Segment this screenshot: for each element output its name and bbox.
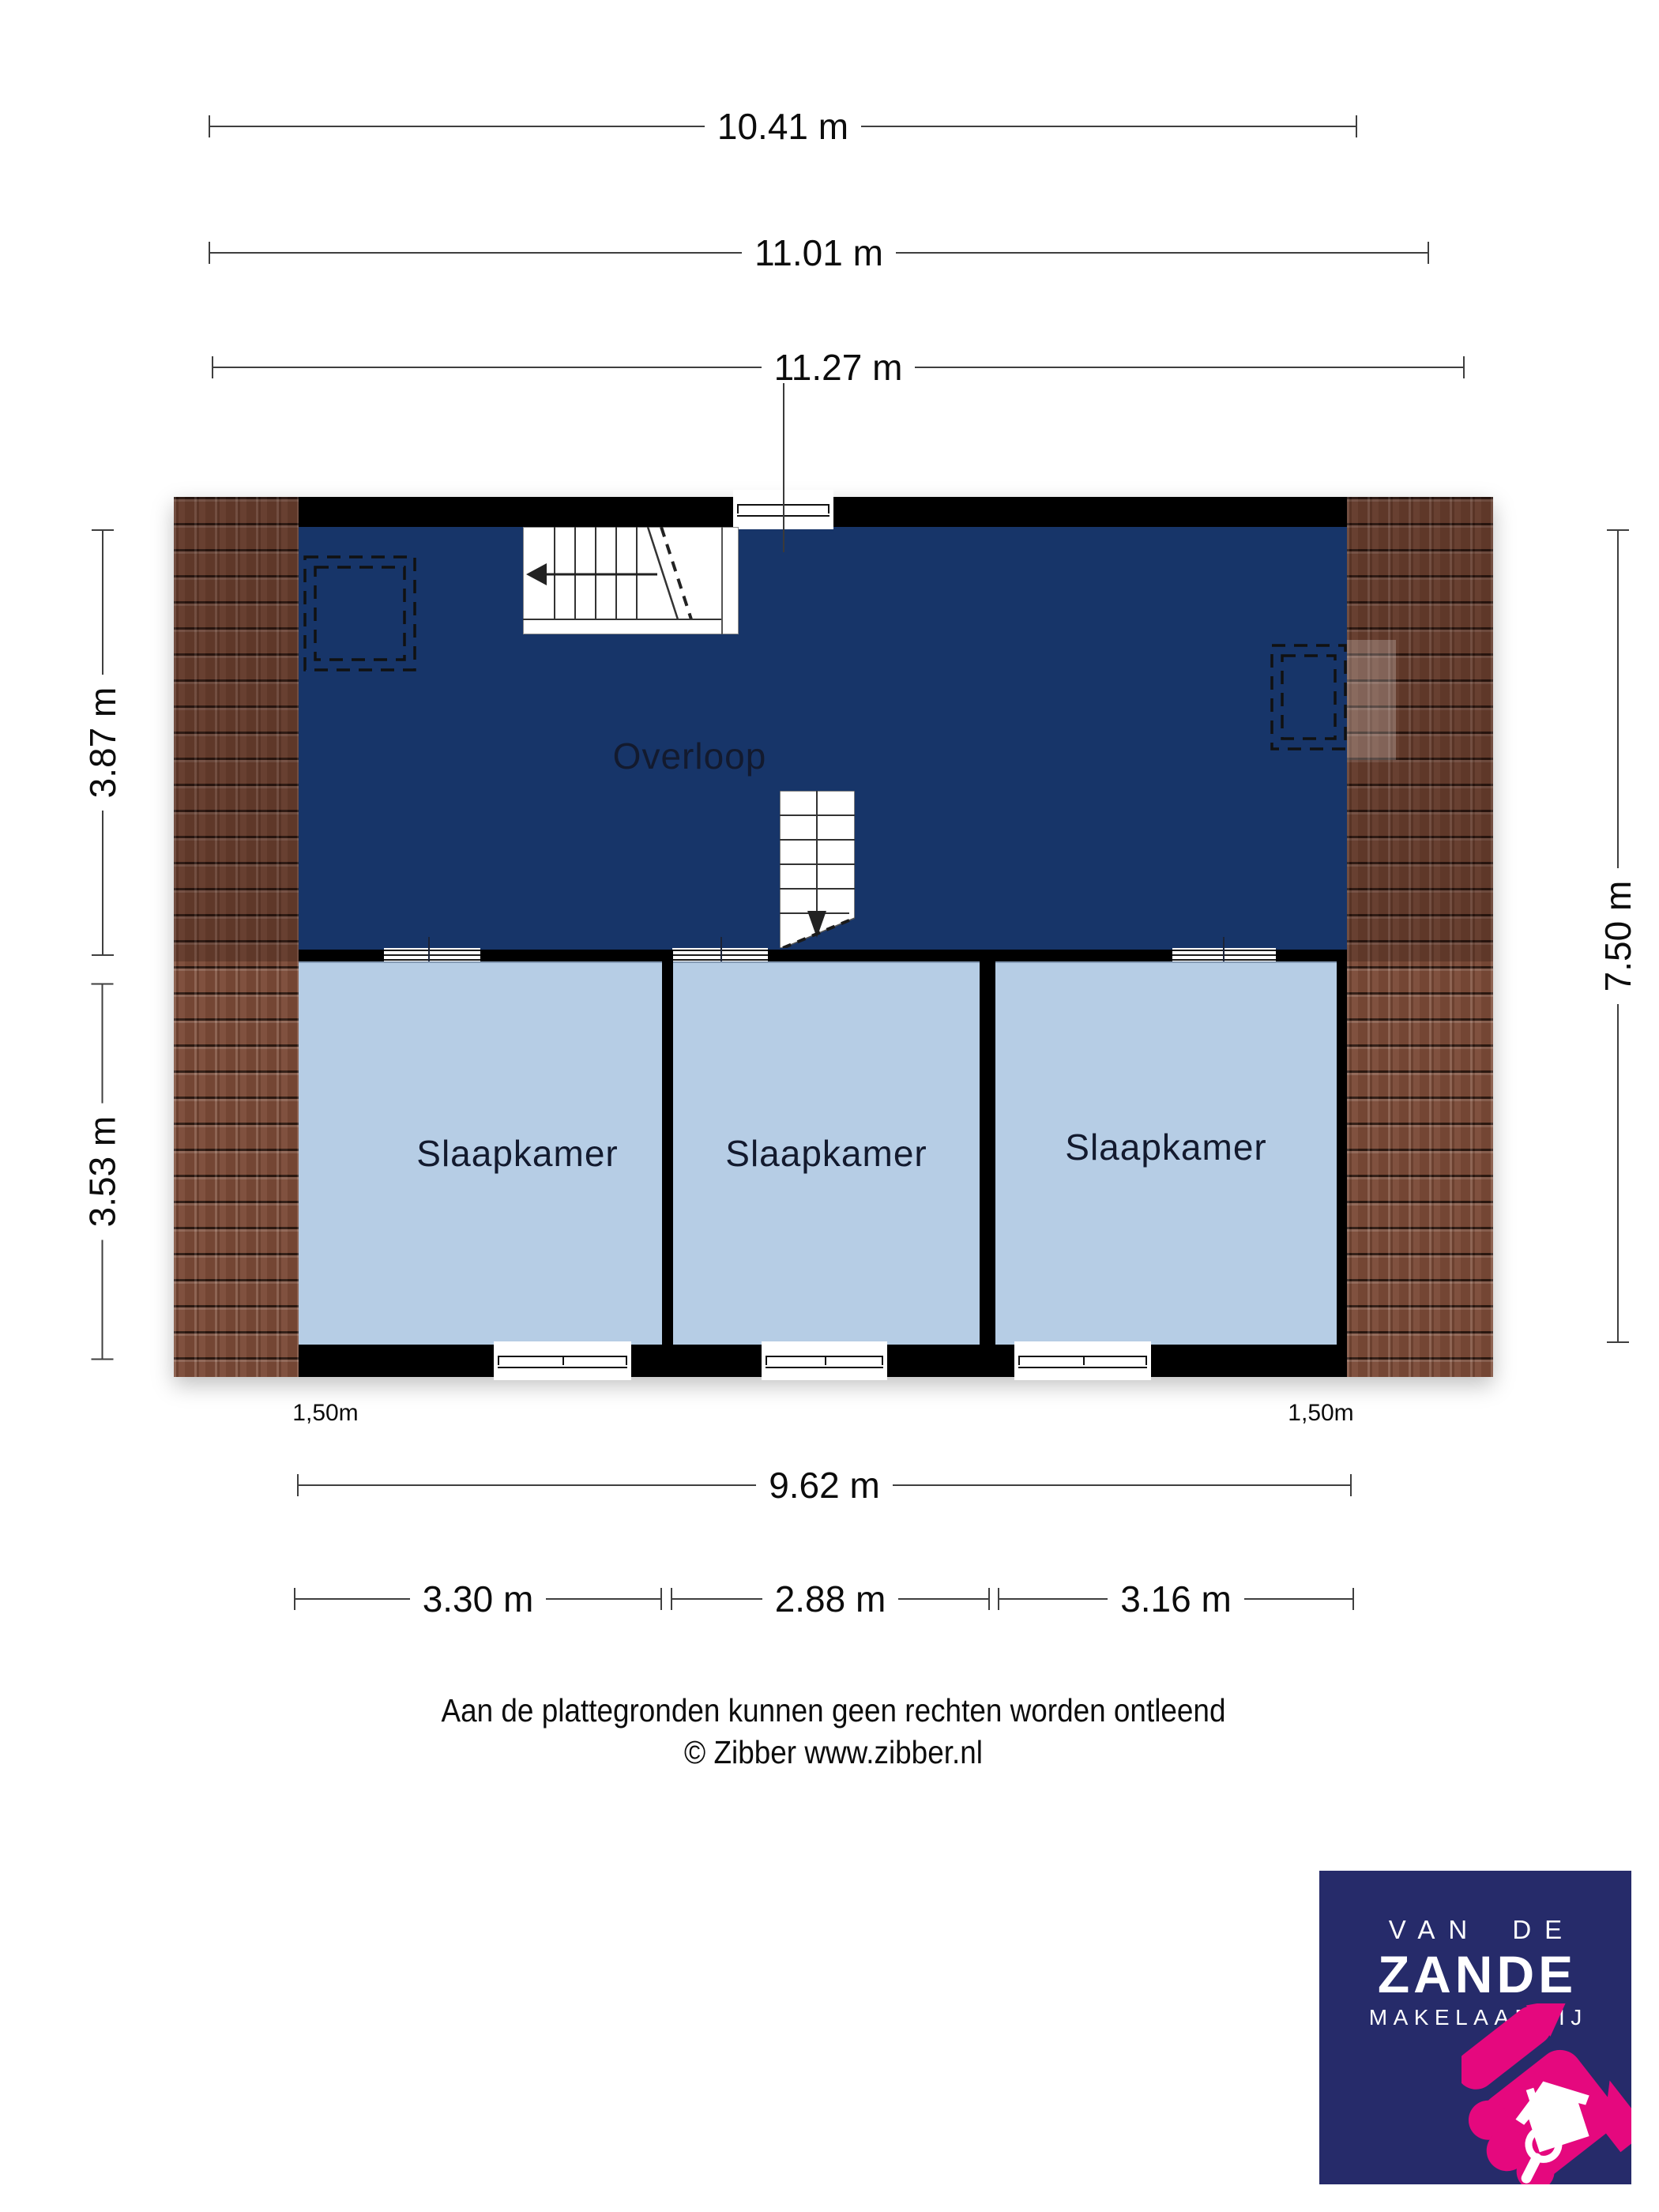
- roof-shade-left: [174, 497, 299, 961]
- logo-line-top: VAN DE: [1319, 1915, 1631, 1945]
- dimension-width-inner: 10.41 m: [209, 109, 1357, 144]
- dimension-tick: [212, 356, 213, 378]
- window-bedroom-1: [494, 1341, 631, 1380]
- window-frame: [1018, 1356, 1020, 1365]
- window-frame: [498, 1356, 499, 1365]
- dimension-line: [915, 367, 1465, 368]
- dimension-label: 11.01 m: [742, 231, 896, 274]
- dimension-room-3: 3.16 m: [998, 1582, 1354, 1616]
- floorplan: Overloop Slaapkamer Slaapkamer: [174, 497, 1493, 1377]
- footer-disclaimer: Aan de plattegronden kunnen geen rechten…: [300, 1692, 1367, 1771]
- dimension-tick: [209, 242, 210, 264]
- dimension-room-2: 2.88 m: [671, 1582, 990, 1616]
- disclaimer-text: Aan de plattegronden kunnen geen rechten…: [300, 1692, 1367, 1729]
- dimension-line: [294, 1598, 410, 1600]
- window-bedroom-3: [1014, 1341, 1151, 1380]
- dimension-tick: [988, 1588, 990, 1610]
- floorplan-page: 10.41 m 11.01 m 11.27 m 3.87 m 3.53 m 7.…: [0, 0, 1659, 2212]
- dimension-line: [898, 1598, 990, 1600]
- dimension-line: [671, 1598, 762, 1600]
- dimension-label: 3.30 m: [410, 1578, 547, 1620]
- dimension-label: 11.27 m: [762, 346, 916, 389]
- dimension-line: [102, 529, 103, 675]
- dimension-line: [546, 1598, 662, 1600]
- dimension-tick: [92, 984, 114, 985]
- staircase-down: [780, 791, 855, 948]
- dimension-line: [1244, 1598, 1354, 1600]
- dimension-line: [998, 1598, 1108, 1600]
- window-frame: [825, 1356, 826, 1365]
- window-frame: [1145, 1356, 1147, 1365]
- dimension-tick: [92, 954, 114, 956]
- dimension-tick: [660, 1588, 662, 1610]
- dimension-line: [1617, 1004, 1619, 1343]
- dimension-width-mid: 11.01 m: [209, 235, 1429, 270]
- dimension-line: [102, 1240, 103, 1360]
- dimension-tick: [1428, 242, 1429, 264]
- dimension-line: [893, 1484, 1352, 1486]
- dimension-line: [209, 252, 742, 254]
- staircase-up: [523, 527, 739, 634]
- door-threshold: [384, 950, 480, 961]
- headroom-label-right: 1,50m: [1254, 1400, 1388, 1427]
- window-frame: [626, 1356, 627, 1365]
- wall-bedroom-3-right: [1337, 950, 1347, 1377]
- dimension-depth-lower: 3.53 m: [85, 984, 120, 1360]
- dimension-line: [297, 1484, 756, 1486]
- room-label-landing: Overloop: [532, 735, 848, 777]
- window-frame: [828, 504, 829, 513]
- dimension-tick: [1350, 1474, 1352, 1496]
- dimension-tick: [209, 115, 210, 137]
- window-frame: [766, 1356, 767, 1365]
- logo-house-emblem: [1461, 2003, 1631, 2184]
- dimension-width-outer: 11.27 m: [212, 350, 1465, 385]
- dimension-line: [209, 126, 705, 127]
- dimension-tick: [671, 1588, 672, 1610]
- dimension-tick: [1463, 356, 1465, 378]
- window-bedroom-2: [762, 1341, 887, 1380]
- dimension-line: [861, 126, 1357, 127]
- window-leader-line: [783, 383, 784, 552]
- room-label-bedroom-2: Slaapkamer: [668, 1132, 984, 1175]
- credit-text: © Zibber www.zibber.nl: [300, 1734, 1367, 1771]
- room-label-bedroom-1: Slaapkamer: [359, 1132, 675, 1175]
- headroom-label-left: 1,50m: [258, 1400, 393, 1427]
- dimension-line: [102, 983, 103, 1103]
- window-frame: [1083, 1356, 1085, 1365]
- dimension-line: [1617, 529, 1619, 868]
- dimension-tick: [1352, 1588, 1354, 1610]
- dimension-label: 3.16 m: [1108, 1578, 1244, 1620]
- dimension-width-floor: 9.62 m: [297, 1468, 1352, 1503]
- dimension-tick: [1356, 115, 1357, 137]
- dimension-tick: [1607, 529, 1629, 531]
- dimension-label: 3.53 m: [81, 1104, 124, 1240]
- broker-logo: VAN DE ZANDE MAKELAARDIJ: [1319, 1871, 1631, 2184]
- dimension-label: 3.87 m: [81, 675, 124, 811]
- dimension-tick: [92, 529, 114, 531]
- logo-line-main: ZANDE: [1319, 1948, 1631, 2000]
- dimension-label: 9.62 m: [756, 1464, 893, 1507]
- dimension-line: [212, 367, 762, 368]
- room-label-bedroom-3: Slaapkamer: [1008, 1126, 1324, 1168]
- skylight-outline-right: [1270, 644, 1347, 750]
- dimension-line: [896, 252, 1429, 254]
- dormer-overlay-right: [1347, 640, 1396, 760]
- skylight-outline-left: [303, 555, 416, 671]
- window-frame: [882, 1356, 883, 1365]
- dimension-tick: [294, 1588, 295, 1610]
- dimension-depth-total: 7.50 m: [1601, 529, 1635, 1343]
- dimension-label: 7.50 m: [1597, 868, 1639, 1005]
- dimension-depth-upper: 3.87 m: [85, 529, 120, 956]
- dimension-label: 2.88 m: [762, 1578, 899, 1620]
- dimension-room-1: 3.30 m: [294, 1582, 662, 1616]
- window-frame: [562, 1356, 564, 1365]
- dimension-tick: [998, 1588, 999, 1610]
- dimension-label: 10.41 m: [705, 105, 861, 148]
- dimension-tick: [297, 1474, 299, 1496]
- window-frame: [737, 504, 739, 513]
- dimension-line: [102, 811, 103, 956]
- dimension-tick: [1607, 1341, 1629, 1343]
- dimension-tick: [92, 1359, 114, 1360]
